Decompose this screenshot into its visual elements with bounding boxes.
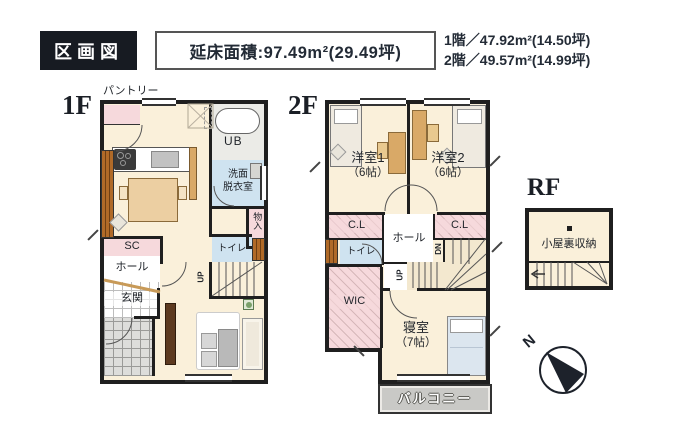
roof-stairs xyxy=(529,212,609,286)
total-area-label: 延床面積:97.49m²(29.49坪) xyxy=(190,39,402,63)
per-floor-areas: 1階／47.92m²(14.50坪) 2階／49.57m²(14.99坪) xyxy=(444,30,590,70)
pantry-label: パントリー xyxy=(103,85,159,99)
floor1-plan: UB 洗面 脱衣室 物入 トイレ SC ホール 玄関 xyxy=(100,100,268,384)
sheet-title-label: 区画図 xyxy=(54,38,123,64)
window-tick xyxy=(491,241,502,252)
stairs-arrow xyxy=(532,270,545,278)
floor1-area-label: 1階／47.92m²(14.50坪) xyxy=(444,30,590,50)
roof-label: RF xyxy=(527,174,560,202)
floor2-plan: 洋室1 （6帖） 洋室2 （6帖） C.L C.L ホール トイレ xyxy=(325,100,490,384)
door-arcs xyxy=(362,185,437,318)
door-arcs xyxy=(106,125,234,344)
balcony: バルコニー xyxy=(378,384,492,414)
floor1-annotations xyxy=(104,104,264,380)
stairs-down-2f xyxy=(445,238,486,290)
balcony-label: バルコニー xyxy=(398,391,473,407)
floor-plan-sheet: 区画図 延床面積:97.49m²(29.49坪) 1階／47.92m²(14.5… xyxy=(0,0,680,440)
window-tick xyxy=(309,161,320,172)
sheet-title: 区画図 xyxy=(40,31,137,70)
total-area-box: 延床面積:97.49m²(29.49坪) xyxy=(155,31,436,70)
floor1-label: 1F xyxy=(62,90,92,121)
window-tick xyxy=(489,155,500,166)
window-tick xyxy=(87,229,98,240)
stairs-up-2f xyxy=(413,262,437,288)
entrance-step xyxy=(104,280,160,292)
floor2-area-label: 2階／49.57m²(14.99坪) xyxy=(444,50,590,70)
stairs-1f xyxy=(212,262,262,296)
floor2-label: 2F xyxy=(288,90,318,121)
window-tick xyxy=(489,325,500,336)
roof-plan: 小屋裏収納 xyxy=(525,208,613,290)
floor2-annotations xyxy=(329,104,486,380)
